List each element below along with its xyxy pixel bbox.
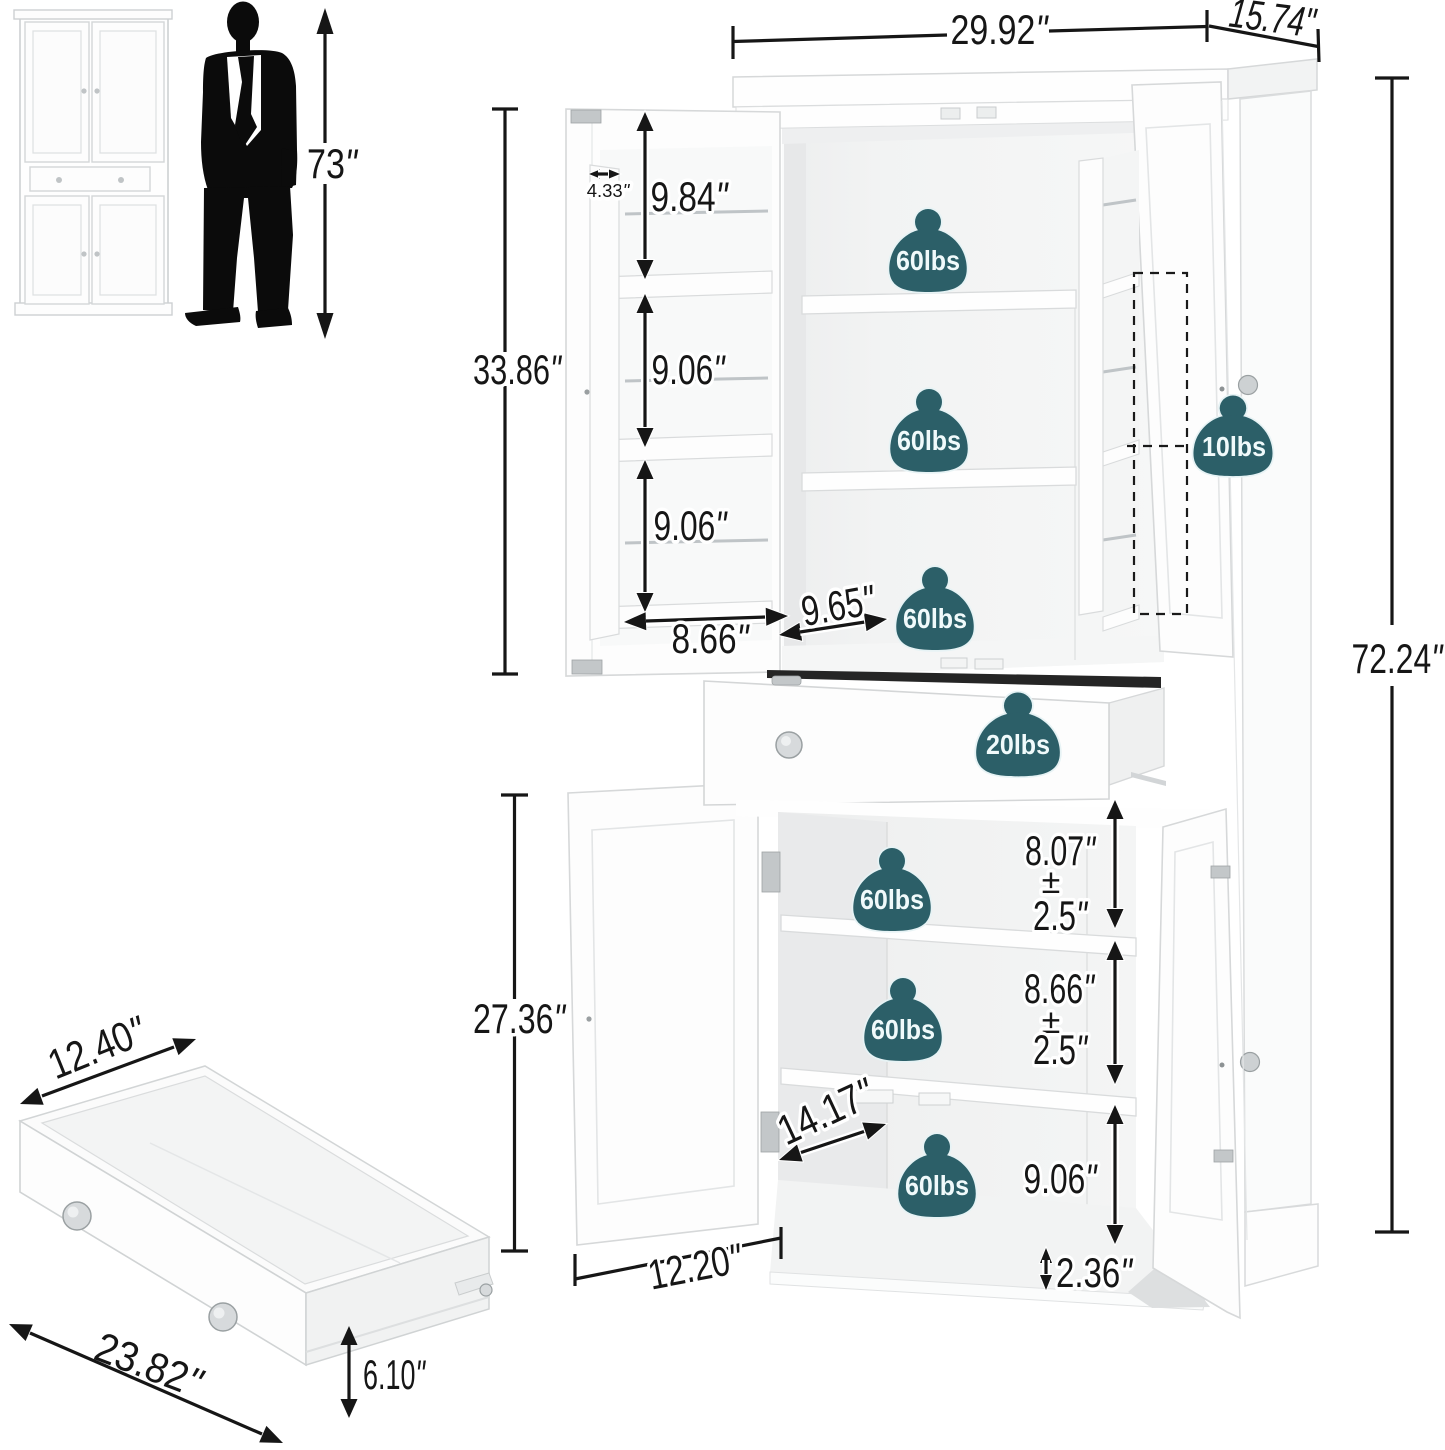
svg-text:10lbs: 10lbs [1202,431,1266,462]
svg-text:60lbs: 60lbs [903,603,967,634]
svg-text:72.24": 72.24" [1352,635,1445,682]
svg-text:60lbs: 60lbs [860,884,924,915]
svg-text:9.84": 9.84" [651,173,730,220]
svg-text:33.86": 33.86" [473,346,563,393]
svg-text:27.36": 27.36" [473,995,567,1042]
svg-text:60lbs: 60lbs [896,245,960,276]
svg-text:2.5": 2.5" [1033,1026,1089,1073]
svg-text:60lbs: 60lbs [905,1170,969,1201]
svg-text:29.92": 29.92" [951,6,1050,53]
svg-text:6.10": 6.10" [363,1351,426,1398]
svg-text:2.5": 2.5" [1033,892,1089,939]
svg-text:60lbs: 60lbs [871,1014,935,1045]
svg-text:73": 73" [307,140,359,187]
svg-text:2.36": 2.36" [1056,1249,1134,1296]
svg-text:20lbs: 20lbs [986,729,1050,760]
svg-text:8.66": 8.66" [672,615,751,662]
svg-text:4.33": 4.33" [587,180,631,201]
svg-text:60lbs: 60lbs [897,425,961,456]
svg-text:9.06": 9.06" [652,346,727,393]
svg-text:8.07": 8.07" [1025,827,1097,874]
svg-text:9.06": 9.06" [654,502,729,549]
svg-text:9.06": 9.06" [1024,1155,1099,1202]
